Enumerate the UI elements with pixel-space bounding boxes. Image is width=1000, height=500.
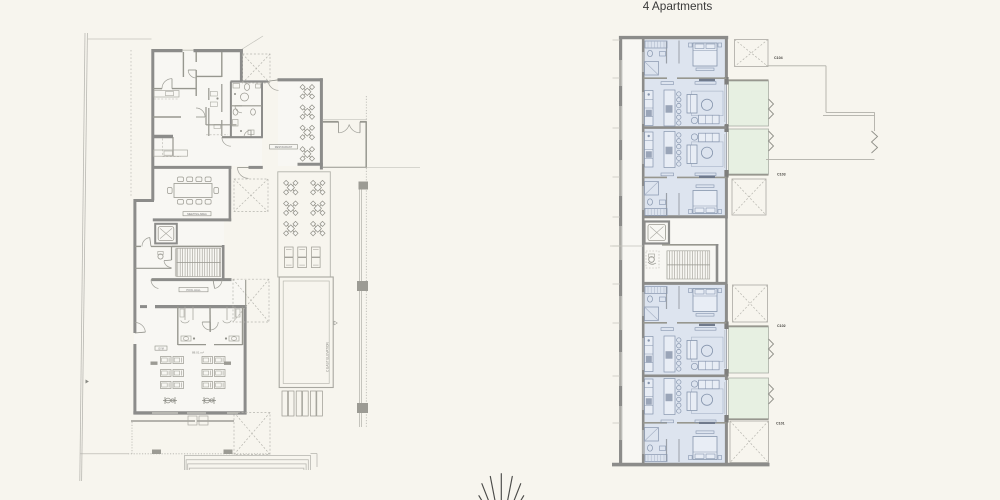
svg-text:C103: C103 bbox=[777, 173, 786, 177]
svg-text:POOL HALL: POOL HALL bbox=[186, 288, 201, 292]
svg-text:GYM: GYM bbox=[158, 347, 163, 350]
svg-text:88.01 m²: 88.01 m² bbox=[192, 351, 204, 355]
svg-text:C EAST ELEVATION: C EAST ELEVATION bbox=[326, 342, 330, 372]
svg-text:C101: C101 bbox=[776, 422, 785, 426]
svg-text:MEETING AREA: MEETING AREA bbox=[187, 212, 207, 216]
svg-text:RESTAURANT: RESTAURANT bbox=[275, 145, 293, 149]
svg-text:C102: C102 bbox=[777, 324, 786, 328]
svg-text:4 Apartments: 4 Apartments bbox=[643, 0, 713, 13]
svg-text:C104: C104 bbox=[774, 56, 783, 60]
